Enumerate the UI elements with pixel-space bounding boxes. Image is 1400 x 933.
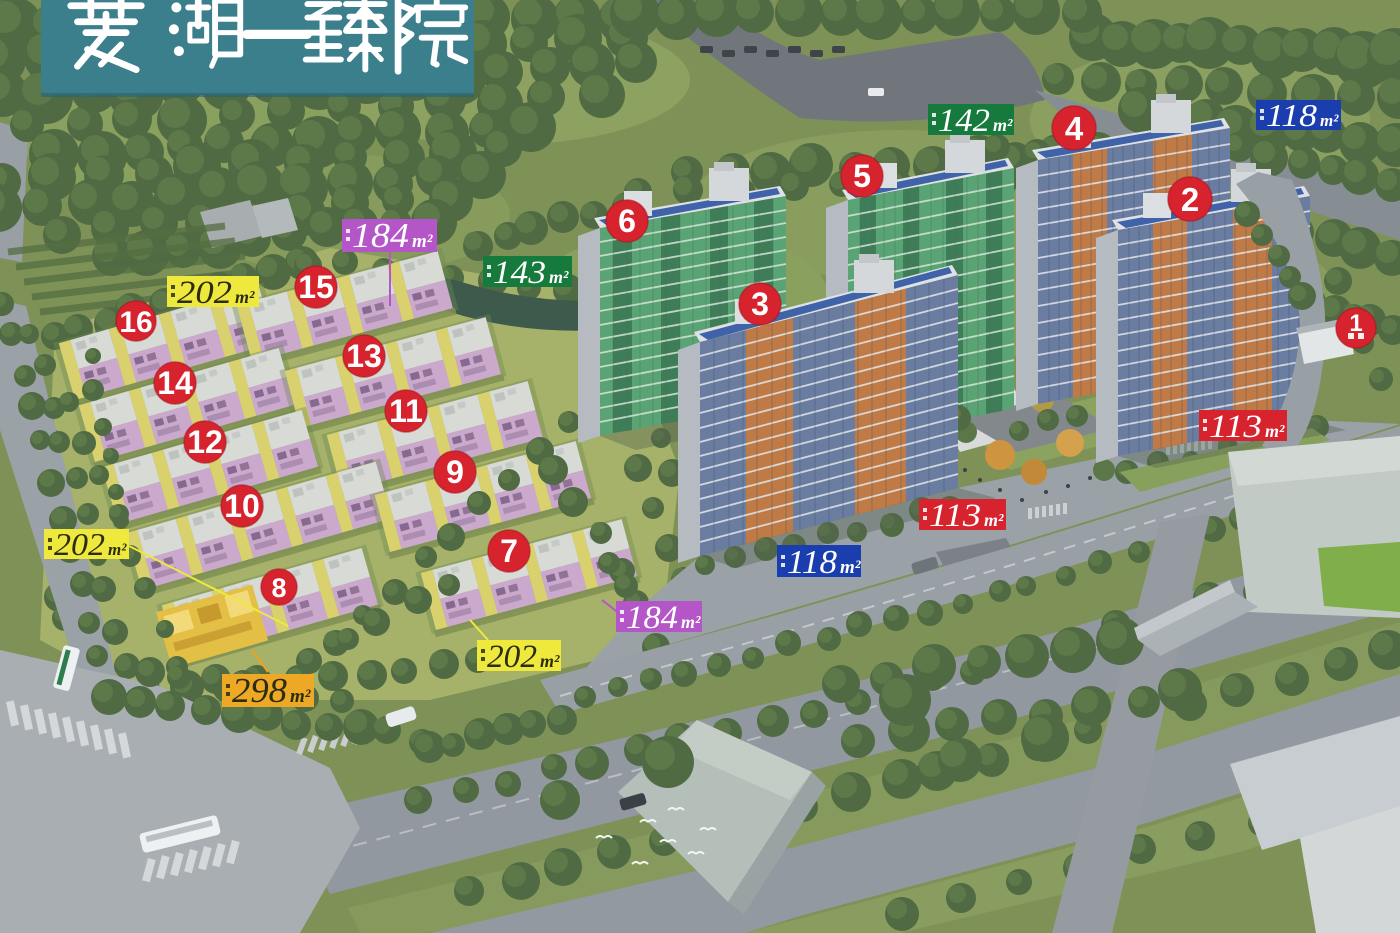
svg-text:202: 202 [177,275,232,311]
svg-text:12: 12 [187,424,223,460]
svg-text:5: 5 [853,158,871,194]
svg-text:118: 118 [787,544,837,581]
svg-text:3: 3 [751,286,769,322]
svg-text:298: 298 [232,671,288,710]
svg-text:184: 184 [626,600,678,636]
svg-text:11: 11 [389,393,423,429]
svg-text:6: 6 [618,203,636,239]
svg-text:7: 7 [500,533,518,569]
svg-text:118: 118 [1266,97,1317,133]
svg-text:202: 202 [54,526,105,562]
svg-text:4: 4 [1065,110,1084,147]
svg-text:m²: m² [290,686,312,707]
svg-text:113: 113 [1209,409,1262,445]
svg-text:m²: m² [984,510,1004,530]
svg-text:143: 143 [493,255,546,291]
svg-text:m²: m² [108,540,127,559]
svg-text:9: 9 [446,454,464,490]
svg-text:8: 8 [271,573,286,603]
svg-text:m²: m² [840,557,862,578]
svg-text:184: 184 [352,216,409,255]
svg-text:m²: m² [1265,421,1285,441]
svg-text:13: 13 [346,338,382,374]
svg-text:m²: m² [993,115,1013,135]
svg-text:m²: m² [1320,111,1339,130]
svg-text:m²: m² [412,231,434,252]
svg-text:10: 10 [224,488,260,524]
svg-text:m²: m² [235,287,255,307]
svg-text:2: 2 [1181,181,1199,218]
svg-text:202: 202 [487,639,537,675]
svg-text:16: 16 [119,306,152,339]
svg-text:15: 15 [298,269,334,305]
svg-text:m²: m² [540,651,560,671]
svg-text:m²: m² [681,612,701,632]
svg-text:142: 142 [938,103,990,139]
svg-text:1: 1 [1349,310,1362,337]
svg-text:113: 113 [929,498,981,534]
svg-text:m²: m² [549,267,569,287]
svg-text:14: 14 [157,365,193,401]
